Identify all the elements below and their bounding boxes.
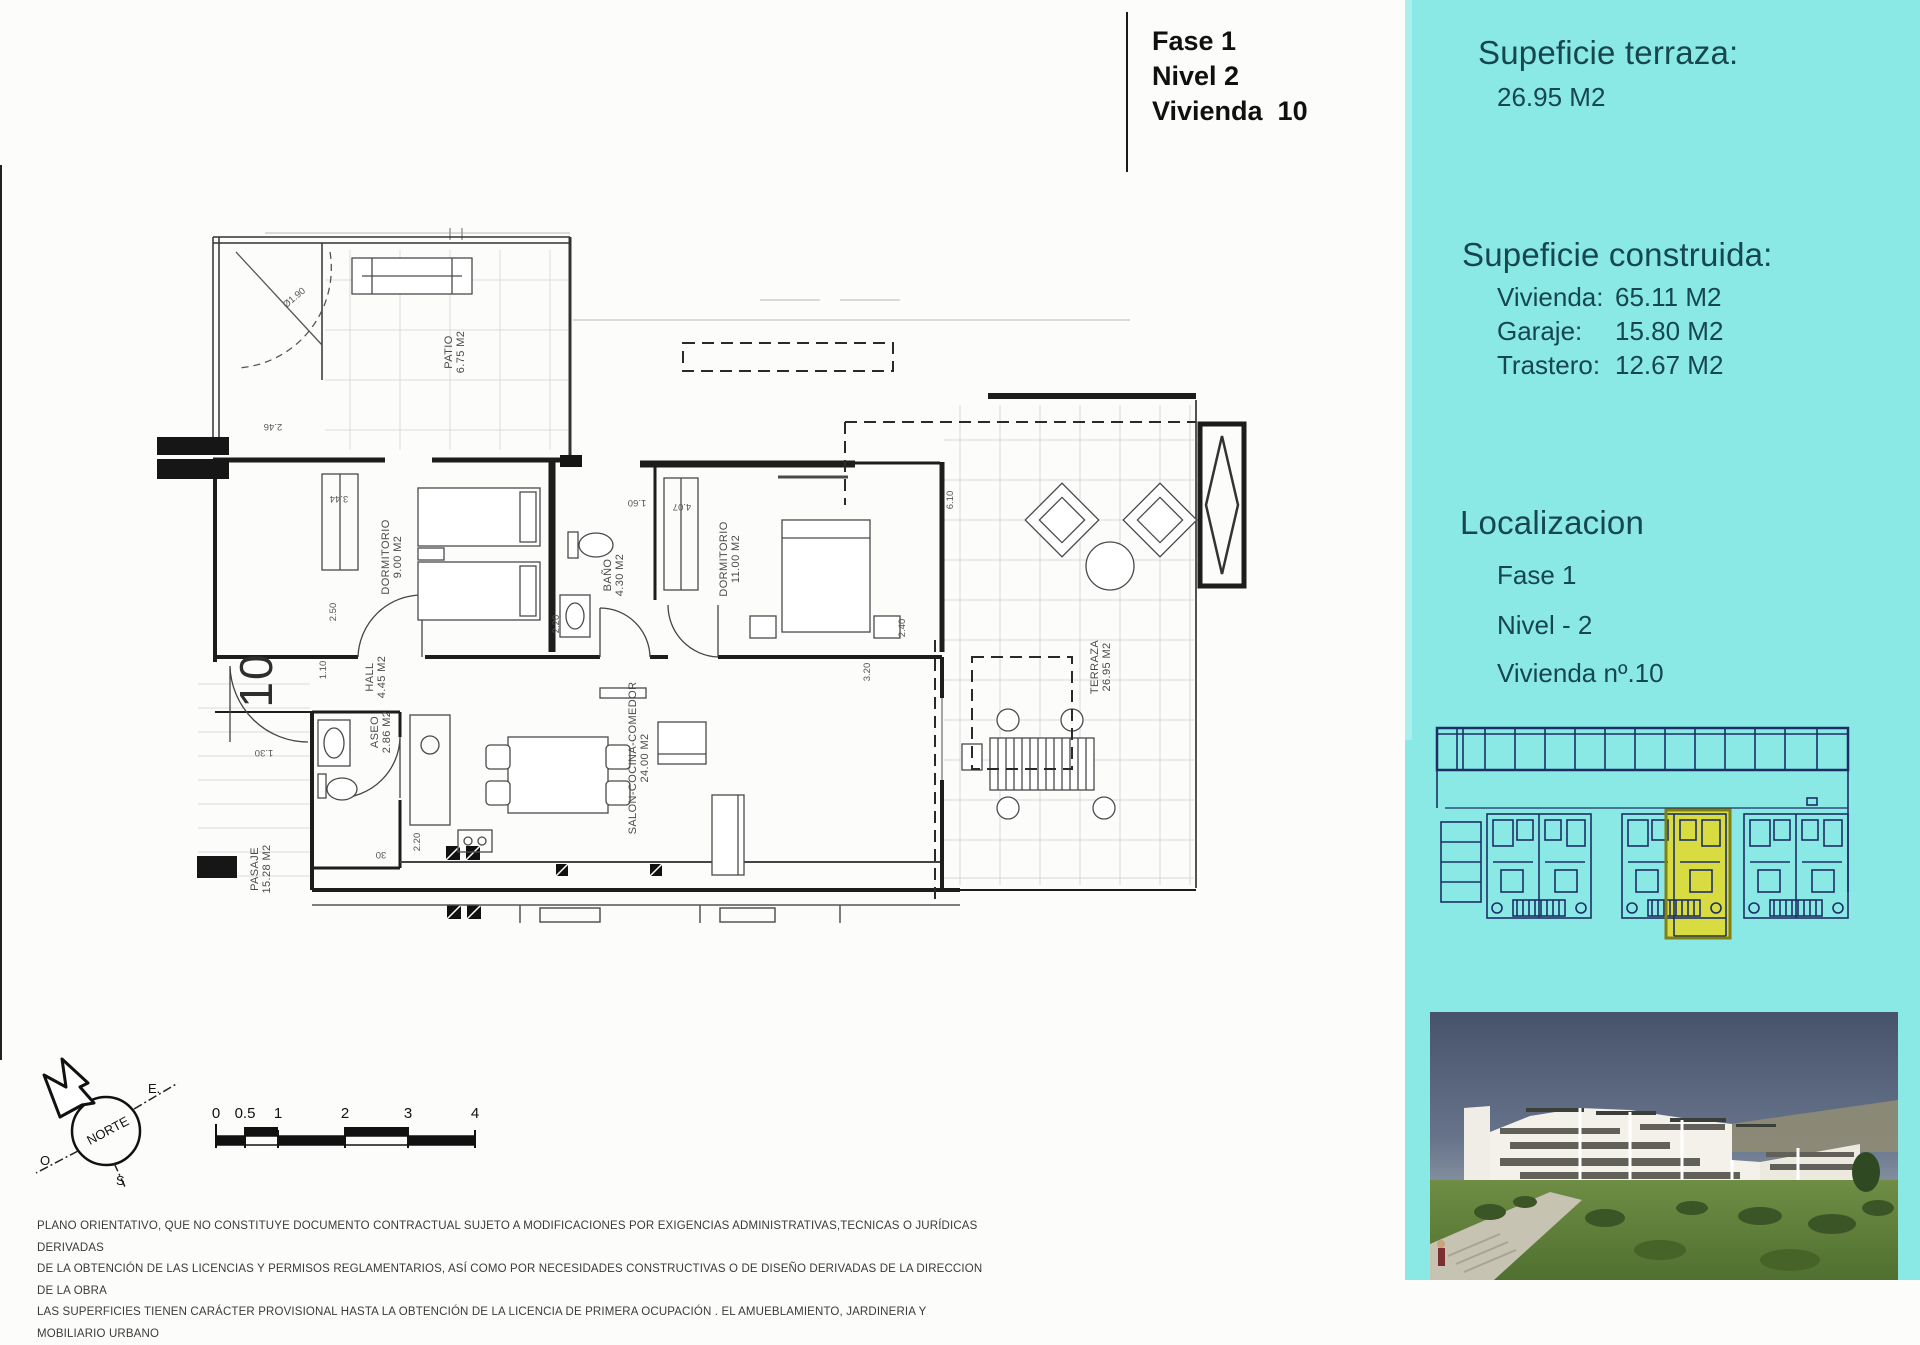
built-row-garaje: Garaje:15.80 M2 — [1497, 316, 1723, 347]
disclaimer-line-3: LAS SUPERFICIES TIENEN CARÁCTER PROVISIO… — [37, 1302, 997, 1345]
svg-text:30: 30 — [376, 849, 387, 860]
unit-number: 10 — [230, 652, 282, 707]
title-nivel: Nivel 2 — [1152, 59, 1308, 94]
scale-bar: 0 0.5 1 2 3 4 — [205, 1100, 495, 1156]
info-panel: Supeficie terraza: 26.95 M2 Supeficie co… — [1405, 0, 1920, 1280]
room-label-salon: SALON-COCINA-COMEDOR24.00 M2 — [627, 682, 651, 835]
terrace-value: 26.95 M2 — [1497, 82, 1605, 113]
svg-text:PATIO: PATIO — [443, 335, 455, 368]
compass-rose: NORTE E. O S — [30, 1055, 200, 1195]
floor-plan: PATIO6.75 M2 DORMITORIO9.00 M2 BAÑO4.30 … — [0, 0, 1280, 960]
room-label-pasaje: PASAJE15.28 M2 — [249, 844, 273, 893]
svg-text:26.95 M2: 26.95 M2 — [1101, 642, 1113, 691]
room-label-aseo: ASEO2.86 M2 — [369, 711, 393, 754]
terrace-heading: Supeficie terraza: — [1478, 34, 1738, 72]
twin-beds — [418, 488, 540, 620]
outdoor-table — [962, 709, 1115, 819]
lounge-chairs — [1025, 483, 1197, 590]
kitchen-counter — [410, 715, 492, 852]
compass-east-label: E. — [148, 1081, 160, 1096]
scale-label-3: 3 — [404, 1105, 412, 1122]
svg-text:9.00 M2: 9.00 M2 — [392, 536, 404, 579]
scale-label-05: 0.5 — [235, 1105, 256, 1122]
location-heading: Localizacion — [1460, 504, 1644, 542]
svg-text:6.75 M2: 6.75 M2 — [455, 331, 467, 374]
wardrobe-1 — [322, 474, 358, 570]
svg-text:2.20: 2.20 — [412, 833, 423, 852]
svg-text:4.45 M2: 4.45 M2 — [376, 656, 388, 699]
compass-north-label: NORTE — [84, 1113, 131, 1148]
building-photo — [1430, 1012, 1898, 1280]
svg-text:HALL: HALL — [364, 662, 376, 691]
scale-label-4: 4 — [471, 1105, 479, 1122]
svg-text:2.20: 2.20 — [551, 615, 562, 634]
location-fase: Fase 1 — [1497, 560, 1577, 591]
svg-text:1.10: 1.10 — [318, 661, 329, 680]
disclaimer-text: PLANO ORIENTATIVO, QUE NO CONSTITUYE DOC… — [37, 1216, 997, 1345]
room-label-dormitorio-1: DORMITORIO9.00 M2 — [380, 519, 404, 594]
svg-text:SALON-COCINA-COMEDOR: SALON-COCINA-COMEDOR — [627, 682, 639, 835]
terrace-grid — [944, 405, 1194, 885]
svg-text:2.46: 2.46 — [264, 421, 283, 432]
scale-label-1: 1 — [274, 1105, 282, 1122]
svg-text:2.50: 2.50 — [328, 603, 339, 622]
svg-text:6.10: 6.10 — [945, 491, 956, 510]
mini-site-plan — [1435, 722, 1855, 944]
location-nivel: Nivel - 2 — [1497, 610, 1592, 641]
disclaimer-line-2: DE LA OBTENCIÓN DE LAS LICENCIAS Y PERMI… — [37, 1259, 997, 1302]
room-label-hall: HALL4.45 M2 — [364, 656, 388, 699]
entry-door-arc — [236, 252, 331, 368]
svg-text:1.30: 1.30 — [255, 747, 274, 758]
photo-tree — [1852, 1152, 1880, 1192]
room-label-bano: BAÑO4.30 M2 — [601, 554, 626, 597]
scale-label-2: 2 — [341, 1105, 349, 1122]
title-block: Fase 1 Nivel 2 Vivienda 10 — [1152, 24, 1308, 129]
svg-text:BAÑO: BAÑO — [601, 559, 614, 592]
room-label-terraza: TERRAZA26.95 M2 — [1089, 640, 1113, 694]
svg-text:11.00 M2: 11.00 M2 — [730, 535, 742, 583]
double-bed — [750, 520, 900, 638]
photo-figure — [1437, 1240, 1445, 1266]
svg-text:15.28 M2: 15.28 M2 — [261, 844, 273, 893]
compass-west-label: O — [40, 1153, 50, 1168]
svg-text:Ø1.90: Ø1.90 — [281, 286, 308, 311]
planter — [1200, 424, 1244, 586]
svg-text:1.60: 1.60 — [628, 497, 647, 508]
scale-label-0: 0 — [212, 1105, 220, 1122]
title-vivienda: Vivienda 10 — [1152, 94, 1308, 129]
svg-text:PASAJE: PASAJE — [249, 847, 261, 891]
svg-text:ASEO: ASEO — [369, 716, 381, 748]
svg-text:DORMITORIO: DORMITORIO — [380, 519, 392, 594]
built-heading: Supeficie construida: — [1462, 236, 1773, 274]
location-vivienda: Vivienda nº.10 — [1497, 658, 1664, 689]
svg-text:2.86 M2: 2.86 M2 — [381, 711, 393, 754]
svg-text:DORMITORIO: DORMITORIO — [718, 521, 730, 596]
title-divider — [1126, 12, 1128, 172]
aseo-fixtures — [318, 720, 357, 800]
sunbed-icon — [352, 258, 472, 294]
panel-edge-highlight — [1405, 0, 1412, 740]
svg-text:2.40: 2.40 — [897, 619, 908, 638]
svg-text:4.30 M2: 4.30 M2 — [614, 554, 626, 597]
svg-text:3.20: 3.20 — [862, 663, 873, 682]
disclaimer-line-1: PLANO ORIENTATIVO, QUE NO CONSTITUYE DOC… — [37, 1216, 997, 1259]
svg-text:TERRAZA: TERRAZA — [1089, 640, 1101, 694]
built-row-vivienda: Vivienda:65.11 M2 — [1497, 282, 1721, 313]
title-fase: Fase 1 — [1152, 24, 1308, 59]
north-arrow-icon — [44, 1059, 94, 1117]
room-label-dormitorio-2: DORMITORIO11.00 M2 — [718, 521, 742, 596]
svg-text:4.07: 4.07 — [673, 501, 692, 512]
svg-text:3.44: 3.44 — [330, 493, 349, 504]
built-row-trastero: Trastero:12.67 M2 — [1497, 350, 1723, 381]
compass-south-label: S — [116, 1173, 125, 1188]
neighbour-lines — [312, 905, 960, 923]
dining-table — [486, 737, 630, 813]
room-label-patio: PATIO6.75 M2 — [443, 331, 467, 374]
svg-text:10: 10 — [230, 652, 282, 707]
svg-text:24.00 M2: 24.00 M2 — [639, 733, 651, 782]
